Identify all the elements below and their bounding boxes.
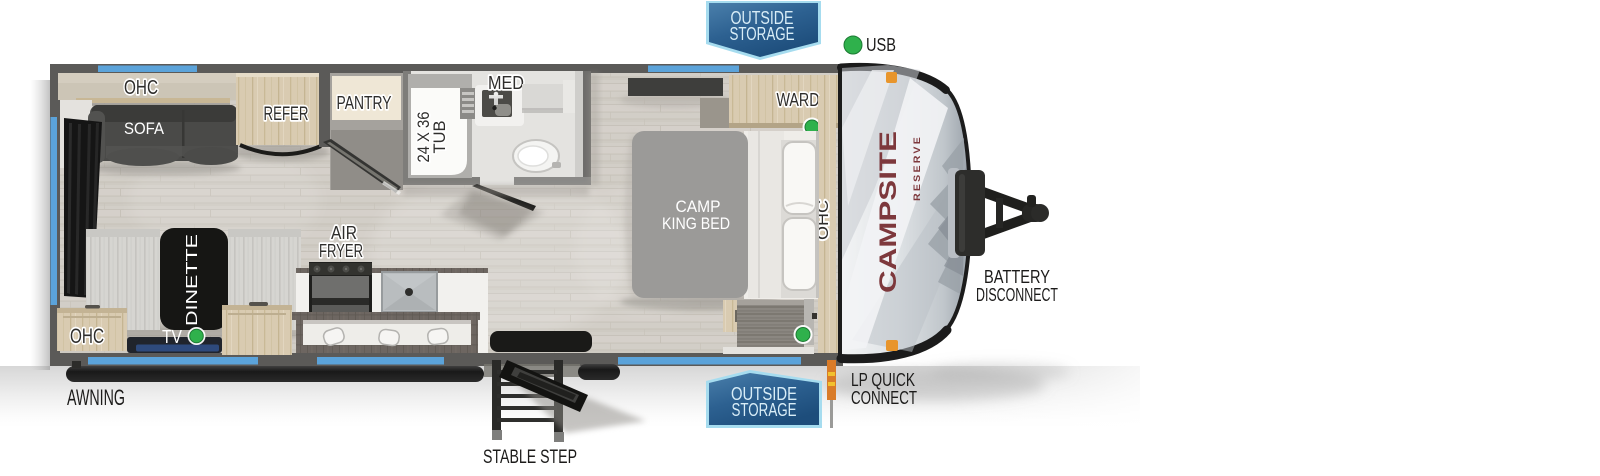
svg-text:STABLE STEP: STABLE STEP [483, 447, 577, 468]
svg-text:DINETTE: DINETTE [184, 234, 201, 326]
svg-text:AIR: AIR [331, 223, 357, 243]
svg-text:USB: USB [866, 35, 896, 55]
svg-text:PANTRY: PANTRY [337, 93, 392, 113]
svg-text:MED: MED [488, 73, 524, 93]
svg-text:REFER: REFER [264, 104, 309, 125]
svg-text:OHC: OHC [124, 77, 158, 99]
svg-text:CONNECT: CONNECT [851, 388, 917, 408]
svg-text:CAMPSITE: CAMPSITE [875, 131, 902, 293]
svg-text:WARD: WARD [777, 90, 820, 110]
svg-text:SOFA: SOFA [124, 119, 165, 138]
svg-text:TUB: TUB [431, 121, 449, 154]
svg-text:FRYER: FRYER [319, 241, 363, 261]
svg-text:OHC: OHC [70, 325, 104, 348]
svg-text:STORAGE: STORAGE [730, 24, 795, 44]
svg-text:STORAGE: STORAGE [732, 400, 797, 420]
svg-text:RESERVE: RESERVE [912, 135, 923, 201]
svg-text:BATTERY: BATTERY [984, 267, 1050, 287]
svg-text:TV: TV [162, 327, 182, 347]
svg-text:KING BED: KING BED [662, 214, 730, 233]
svg-text:DISCONNECT: DISCONNECT [976, 285, 1058, 305]
svg-text:AWNING: AWNING [67, 385, 125, 410]
svg-text:LP QUICK: LP QUICK [851, 370, 915, 390]
